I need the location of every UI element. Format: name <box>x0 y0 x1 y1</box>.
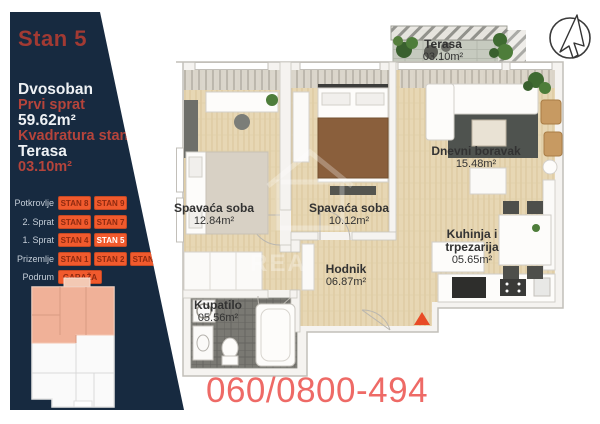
builtin-wardrobe <box>184 252 262 290</box>
floor-row-label: 1. Sprat <box>12 235 54 245</box>
unit-button-stan-2[interactable]: STAN 2 <box>94 252 127 266</box>
unit-button-stan-6[interactable]: STAN 6 <box>58 215 91 229</box>
unit-button-stan-9[interactable]: STAN 9 <box>94 196 127 210</box>
corridor-floor <box>262 252 300 290</box>
floor-row-prizemlje: Prizemlje STAN 1 STAN 2 STAN 3 <box>12 252 172 266</box>
mini-floorplan <box>30 277 116 409</box>
apartment-area-label: Kvadratura stana <box>18 129 136 145</box>
hall-cabinet <box>302 244 314 290</box>
apartment-area: 59.62m² <box>18 113 136 129</box>
floor-row-label: Potkrovlje <box>12 198 54 208</box>
terrace-area <box>391 26 526 64</box>
terrace-chair <box>441 42 451 52</box>
unit-button-stan-4[interactable]: STAN 4 <box>58 233 91 247</box>
listing-canvas: Terasa 03.10m² Spavaća soba 12.84m² Spav… <box>0 0 600 424</box>
floor-row-label: 2. Sprat <box>12 217 54 227</box>
phone-number: 060/0800-494 <box>206 371 428 411</box>
unit-button-stan-1[interactable]: STAN 1 <box>58 252 91 266</box>
terrace-area: 03.10m² <box>18 160 136 176</box>
apartment-title: Stan 5 <box>18 26 87 52</box>
terrace-table <box>424 45 438 59</box>
unit-button-stan-7[interactable]: STAN 7 <box>94 215 127 229</box>
floor-row-label: Prizemlje <box>12 254 54 264</box>
unit-button-stan-8[interactable]: STAN 8 <box>58 196 91 210</box>
terrace-label: Terasa <box>18 144 136 160</box>
compass-icon <box>550 15 590 58</box>
unit-button-stan-5-active[interactable]: STAN 5 <box>94 233 127 247</box>
